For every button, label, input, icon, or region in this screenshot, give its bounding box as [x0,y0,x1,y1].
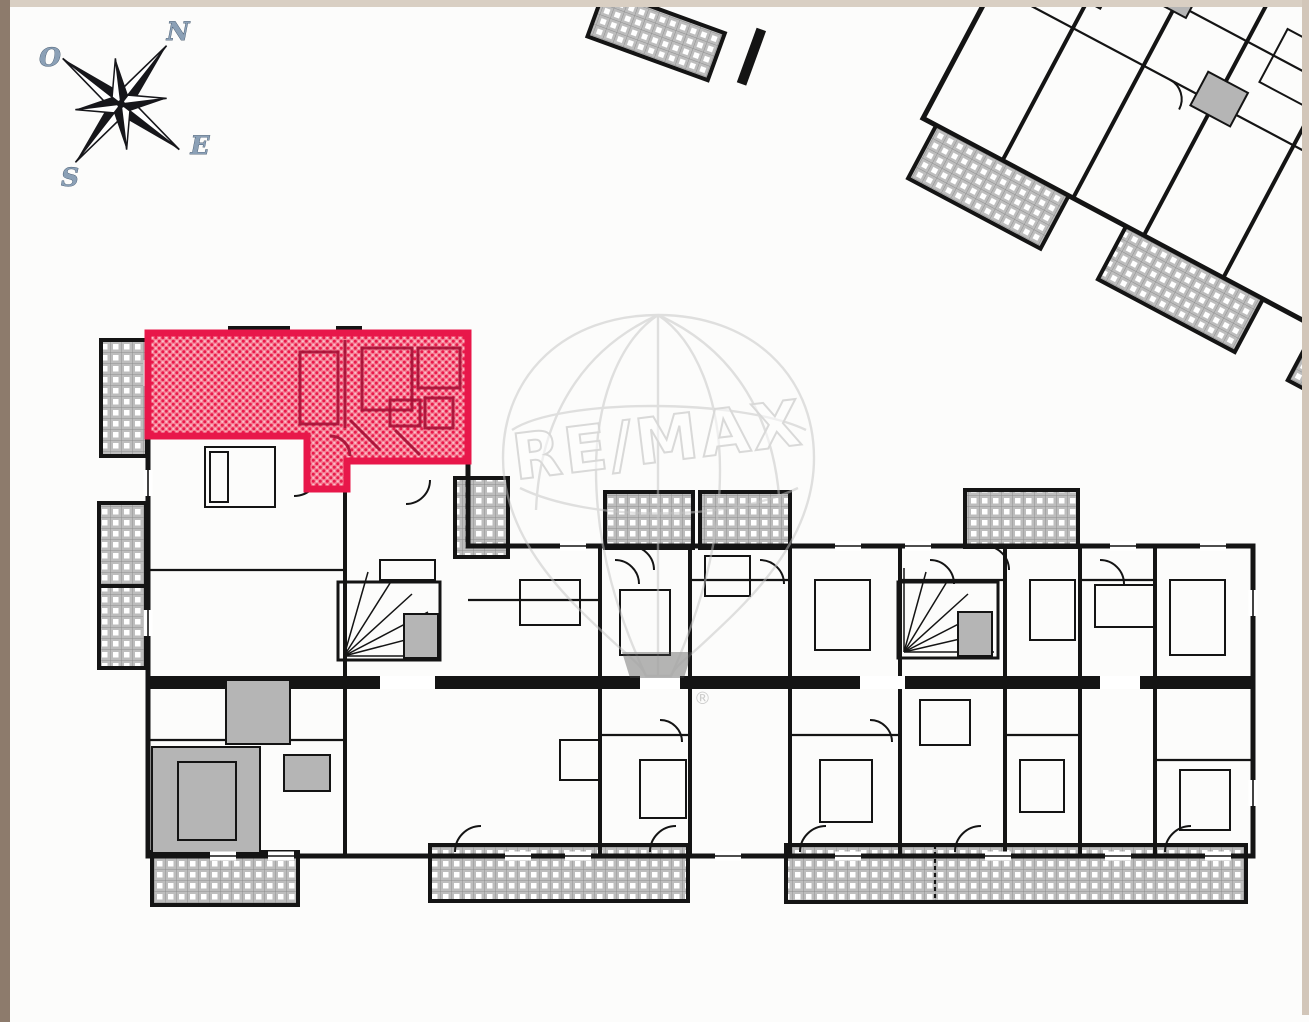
corridor [148,676,1253,689]
compass-label-north: N [166,17,191,46]
floorplan-page: RE/MAX ® [0,0,1309,1022]
compass-label-south: S [61,163,79,192]
frame-left-bar [0,0,10,1022]
balloon-basket [622,652,692,678]
compass-label-east: E [189,131,210,160]
frame-top-bar [10,0,1309,7]
compass-label-west: O [39,43,61,72]
frame-right-bar [1302,0,1309,1015]
watermark-registered: ® [694,689,711,709]
